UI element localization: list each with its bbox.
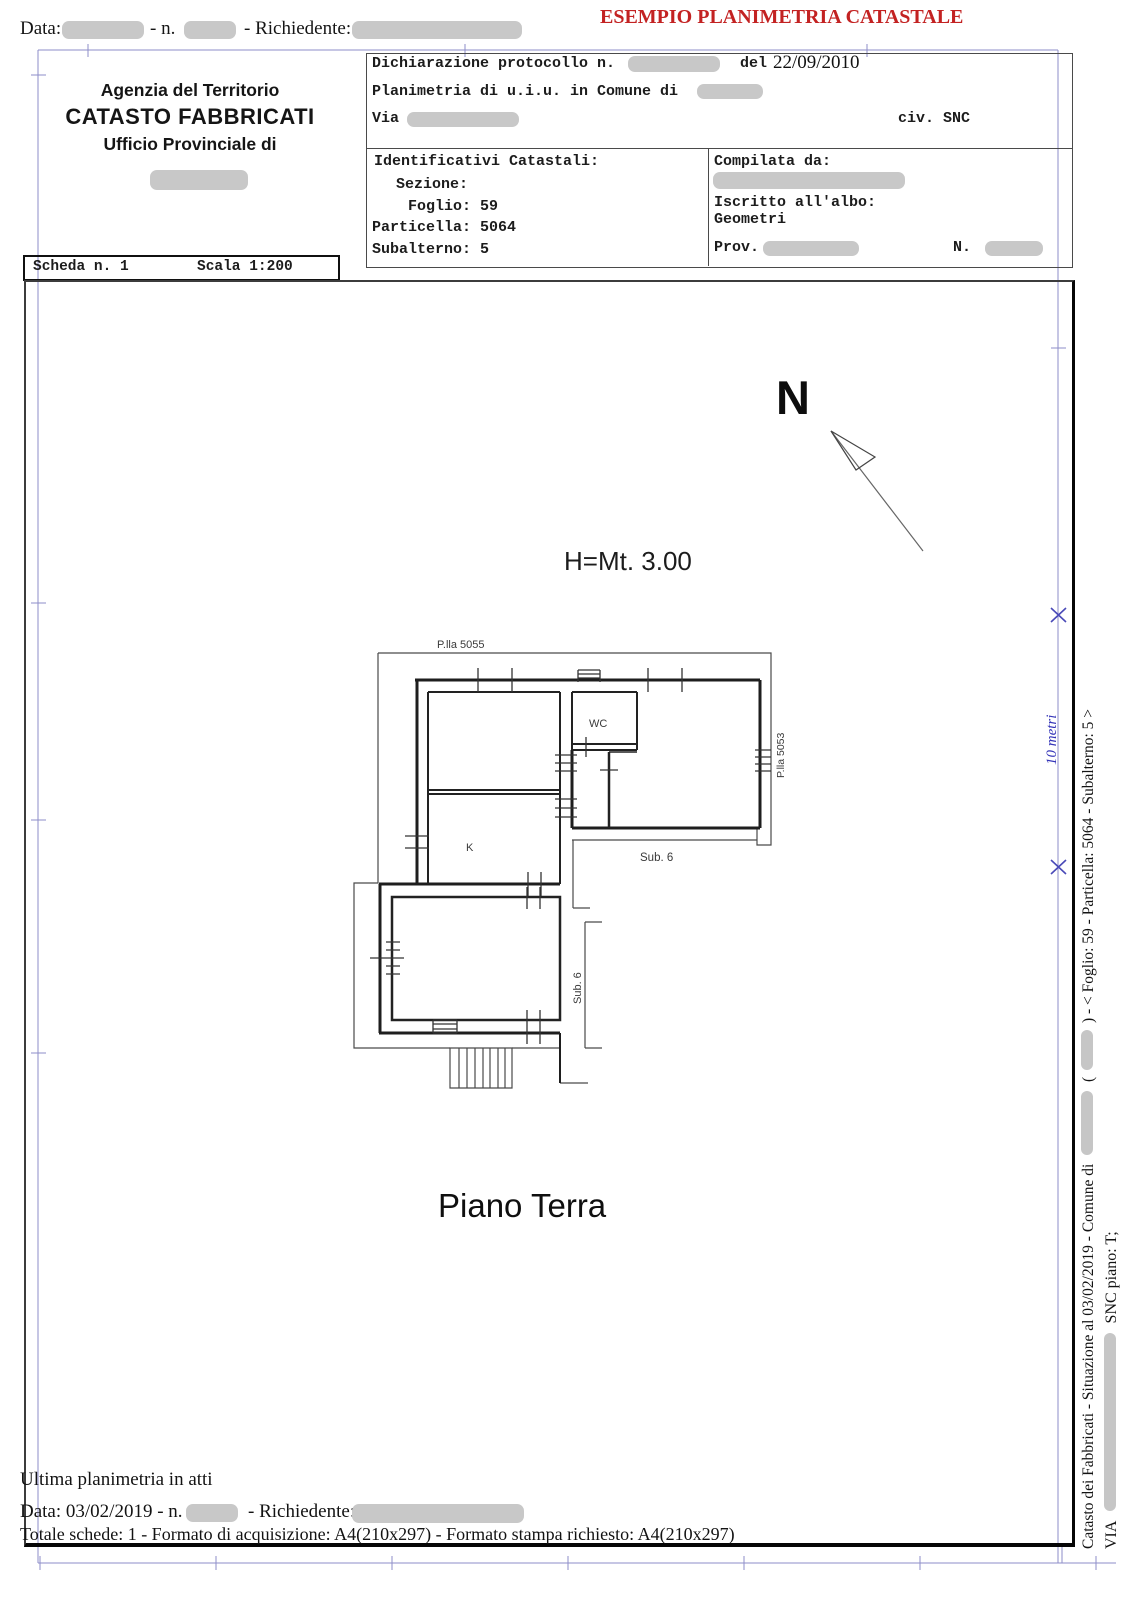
civ-value: civ. SNC [898,111,970,126]
redacted-richiedente [352,21,522,39]
scheda-number: Scheda n. 1 [33,259,129,275]
albo-value: Geometri [714,212,786,227]
side-caption-line2: VIA SNC piano: T; [1103,1231,1121,1549]
side-caption-line1: Catasto dei Fabbricati - Situazione al 0… [1080,709,1098,1549]
redacted-compiler [713,172,905,189]
agency-line1: Agenzia del Territorio [40,80,340,101]
topbar-n-label: - n. [150,18,175,40]
footer-totale: Totale schede: 1 - Formato di acquisizio… [20,1524,735,1545]
foglio-field: Foglio: 59 [408,199,498,214]
redacted-number [184,21,236,39]
side-caption1-part3: ) - < Foglio: 59 - Particella: 5064 - Su… [1080,709,1097,1023]
redacted-province [150,170,248,190]
via-label: Via [372,111,399,126]
document-page: P.lla 5055 WC K Sub. 6 Sub. 6 P.lla 5053… [0,0,1132,1600]
declaration-box-divider-v [708,148,709,266]
drawing-frame [24,280,1075,1547]
del-label: del [740,56,767,71]
redacted-footer-number [186,1504,238,1522]
redacted-side-comune [1081,1091,1093,1155]
dichiarazione-label: Dichiarazione protocollo n. [372,56,615,71]
redacted-side-street [1104,1333,1116,1511]
redacted-footer-richiedente [352,1504,524,1523]
redacted-n [985,241,1043,256]
redacted-prov [763,241,859,256]
side-caption1-part1: Catasto dei Fabbricati - Situazione al 0… [1080,1164,1097,1549]
footer-ultima: Ultima planimetria in atti [20,1469,213,1491]
agency-line2: CATASTO FABBRICATI [40,104,340,130]
declaration-box-divider-h [366,148,1072,149]
redacted-street [407,112,519,127]
blue-measure-note: 10 metri [1044,715,1061,765]
sezione-field: Sezione: [396,177,468,192]
scheda-box: Scheda n. 1 Scala 1:200 [23,255,340,281]
prov-label: Prov. [714,240,759,255]
redacted-comune [697,84,763,99]
topbar-data-label: Data: [20,18,61,40]
footer-data-part1: Data: 03/02/2019 - n. [20,1501,183,1523]
iscritto-label: Iscritto all'albo: [714,195,876,210]
compilata-label: Compilata da: [714,154,831,169]
planimetria-label: Planimetria di u.i.u. in Comune di [372,84,678,99]
scala-value: Scala 1:200 [197,259,293,275]
n-label: N. [953,240,971,255]
particella-field: Particella: 5064 [372,220,516,235]
protocol-date: 22/09/2010 [773,53,860,72]
topbar-richiedente-label: - Richiedente: [244,18,351,40]
footer-data-part2: - Richiedente: [248,1501,355,1523]
redacted-date [62,21,144,39]
agency-header: Agenzia del Territorio CATASTO FABBRICAT… [40,80,340,155]
side-caption2-part1: VIA [1103,1521,1120,1549]
identificativi-title: Identificativi Catastali: [374,154,599,169]
subalterno-field: Subalterno: 5 [372,242,489,257]
side-caption1-part2: ( [1080,1077,1097,1082]
page-title: ESEMPIO PLANIMETRIA CATASTALE [600,6,963,29]
agency-line3: Ufficio Provinciale di [40,134,340,155]
redacted-side-code [1081,1030,1093,1070]
redacted-protocol [628,56,720,72]
side-caption2-part2: SNC piano: T; [1103,1231,1120,1323]
